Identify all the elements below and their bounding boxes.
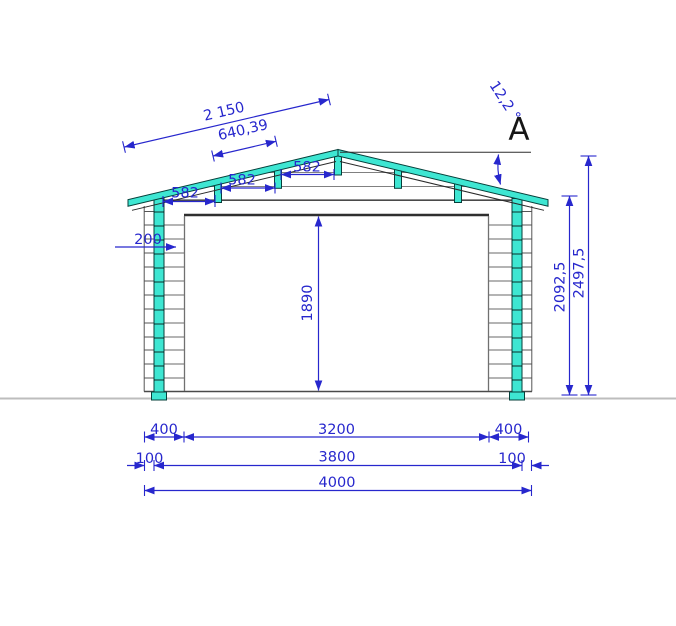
svg-text:3200: 3200: [318, 422, 355, 438]
svg-text:1890: 1890: [300, 285, 316, 322]
dim-wall-offset: 200: [115, 232, 176, 248]
svg-text:2092,5: 2092,5: [553, 262, 569, 313]
dim-row3: 4000: [145, 475, 532, 496]
svg-text:582: 582: [228, 173, 256, 189]
svg-text:400: 400: [495, 422, 523, 438]
svg-text:640,39: 640,39: [217, 117, 270, 144]
dim-total-height: 2497,5: [572, 156, 597, 395]
door-opening: [184, 215, 489, 391]
right-corner-post: [510, 199, 525, 401]
wall-structure: [144, 200, 532, 391]
dim-slope-purlin: 640,39: [212, 117, 278, 161]
dim-slope-total: 2 150: [123, 94, 331, 153]
svg-text:100: 100: [498, 451, 526, 467]
svg-text:400: 400: [150, 422, 178, 438]
right-log-end-column: [522, 206, 532, 392]
svg-text:4000: 4000: [319, 475, 356, 491]
dim-row2: 100 3800 100: [127, 450, 549, 472]
svg-text:582: 582: [171, 186, 199, 202]
svg-text:100: 100: [136, 451, 164, 467]
svg-text:2497,5: 2497,5: [572, 248, 588, 299]
right-wall-logs: [489, 225, 512, 378]
drawing-svg: 12,2 ° A 2 150 640,39 582 582 582 200: [0, 0, 676, 626]
svg-text:3800: 3800: [319, 450, 356, 466]
dim-purlin-spacing-1: 582: [163, 186, 215, 208]
svg-text:200: 200: [134, 232, 162, 248]
left-wall-logs: [164, 225, 184, 378]
dim-purlin-spacing-2: 582: [221, 173, 275, 194]
elevation-drawing: 12,2 ° A 2 150 640,39 582 582 582 200: [0, 0, 676, 626]
view-label-A: A: [508, 112, 529, 148]
dim-row1: 400 3200 400: [145, 422, 529, 443]
dim-door-height: 1890: [300, 217, 319, 391]
svg-text:582: 582: [293, 160, 321, 176]
left-corner-post: [152, 199, 167, 401]
